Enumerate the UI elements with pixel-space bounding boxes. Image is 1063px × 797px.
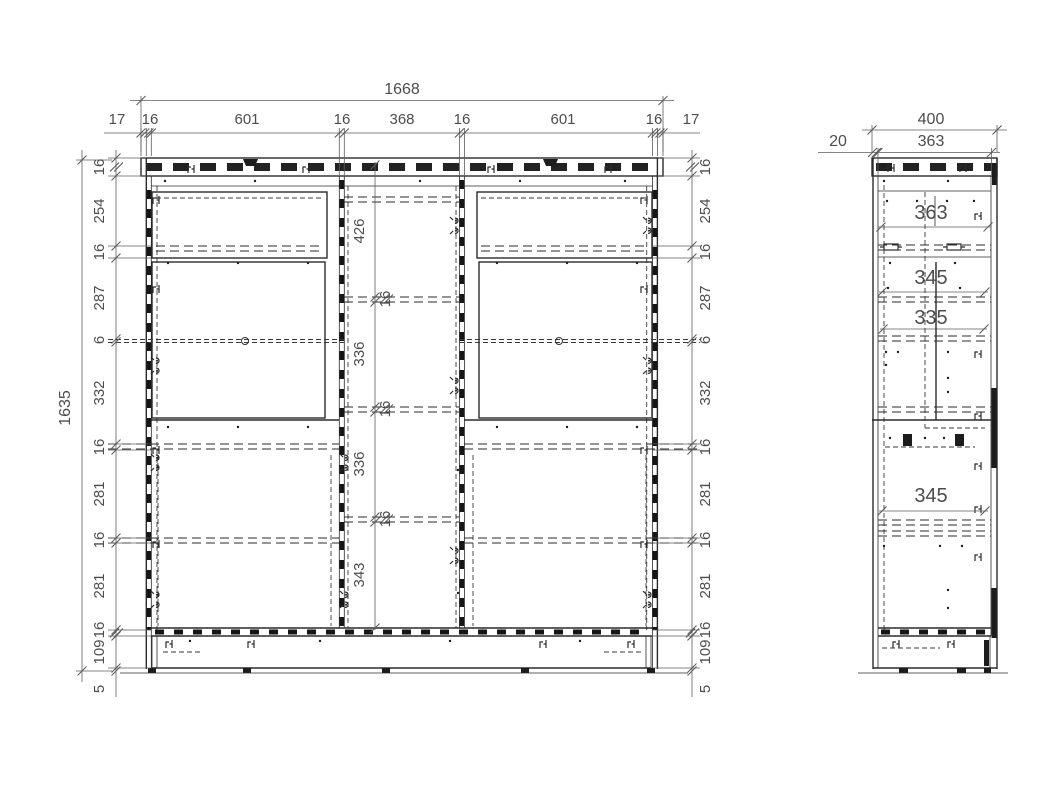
dim-16-b: 16 [334,111,351,128]
front-bottom-plinth [120,628,688,673]
dim-363-inner: 363 [914,202,947,224]
cam-lock-symbols [153,196,647,548]
rchain-5: 5 [697,685,714,693]
front-door-right [459,262,700,418]
cchain-16-c: 16 [377,511,394,528]
dim-368: 368 [389,111,414,128]
side-view: 400 363 20 363 345 335 345 [818,111,1008,673]
lchain-5: 5 [91,685,108,693]
lchain-332: 332 [91,380,108,405]
dim-345-b: 345 [914,485,947,507]
rchain-109: 109 [697,639,714,664]
door-knob-left [242,338,249,345]
cchain-343: 343 [351,562,368,587]
front-dim-right-chain: 16 254 16 287 6 332 16 281 16 281 16 109… [653,150,714,697]
rchain-281-a: 281 [697,481,714,506]
lchain-16-e: 16 [91,622,108,639]
front-drawer-left [152,192,327,264]
dim-16-d: 16 [646,111,663,128]
rchain-332: 332 [697,380,714,405]
lchain-254: 254 [91,198,108,223]
dim-1635: 1635 [57,390,74,426]
front-drawer-right [477,192,652,264]
cchain-336-a: 336 [351,341,368,366]
dim-363-top: 363 [918,133,945,150]
drawing-sheet: 1668 17 16 601 16 368 16 601 16 17 1635 [0,0,1063,797]
cchain-336-b: 336 [351,451,368,476]
side-compartment-dims: 363 345 335 345 [914,202,947,507]
lchain-281-b: 281 [91,573,108,598]
dim-601-right: 601 [550,111,575,128]
front-lower-doors [108,455,700,626]
lchain-281-a: 281 [91,481,108,506]
side-internals [872,191,993,609]
cchain-16-a: 16 [377,291,394,308]
rchain-16-d: 16 [697,532,714,549]
front-view: 1668 17 16 601 16 368 16 601 16 17 1635 [57,81,714,697]
dim-20: 20 [829,133,847,150]
door-knob-right [556,338,563,345]
front-dim-center-chain: 426 16 336 16 336 16 343 [351,161,394,633]
dim-601-left: 601 [234,111,259,128]
lchain-16-d: 16 [91,532,108,549]
rchain-16-a: 16 [697,159,714,176]
front-center-shelves [344,186,459,628]
front-mid-shelf [108,420,700,449]
dim-400: 400 [918,111,945,128]
rchain-6: 6 [697,336,714,344]
rchain-16-c: 16 [697,439,714,456]
dim-335: 335 [914,307,947,329]
lchain-16-b: 16 [91,244,108,261]
front-dim-left-chain: 16 254 16 287 6 332 16 281 16 281 16 109… [91,150,151,697]
lchain-109: 109 [91,639,108,664]
side-carcass [872,158,997,669]
front-dim-overall-height: 1635 [57,150,112,682]
front-door-left [108,262,344,418]
front-top-panel [141,158,663,186]
rchain-254: 254 [697,198,714,223]
lchain-16-c: 16 [91,439,108,456]
rchain-281-b: 281 [697,573,714,598]
dim-16-a: 16 [142,111,159,128]
lchain-6: 6 [91,336,108,344]
cchain-16-b: 16 [377,401,394,418]
dim-16-c: 16 [454,111,471,128]
rchain-16-e: 16 [697,622,714,639]
cchain-426: 426 [351,218,368,243]
dim-1668: 1668 [384,81,420,98]
front-carcass-panels [146,158,657,669]
lchain-287: 287 [91,285,108,310]
lchain-16-a: 16 [91,159,108,176]
cabinet-technical-drawing: 1668 17 16 601 16 368 16 601 16 17 1635 [0,0,1063,797]
side-bottom-plinth [858,628,1008,673]
dim-17-left: 17 [109,111,126,128]
dim-17-right: 17 [683,111,700,128]
dim-345-a: 345 [914,267,947,289]
rchain-16-b: 16 [697,244,714,261]
rchain-287: 287 [697,285,714,310]
